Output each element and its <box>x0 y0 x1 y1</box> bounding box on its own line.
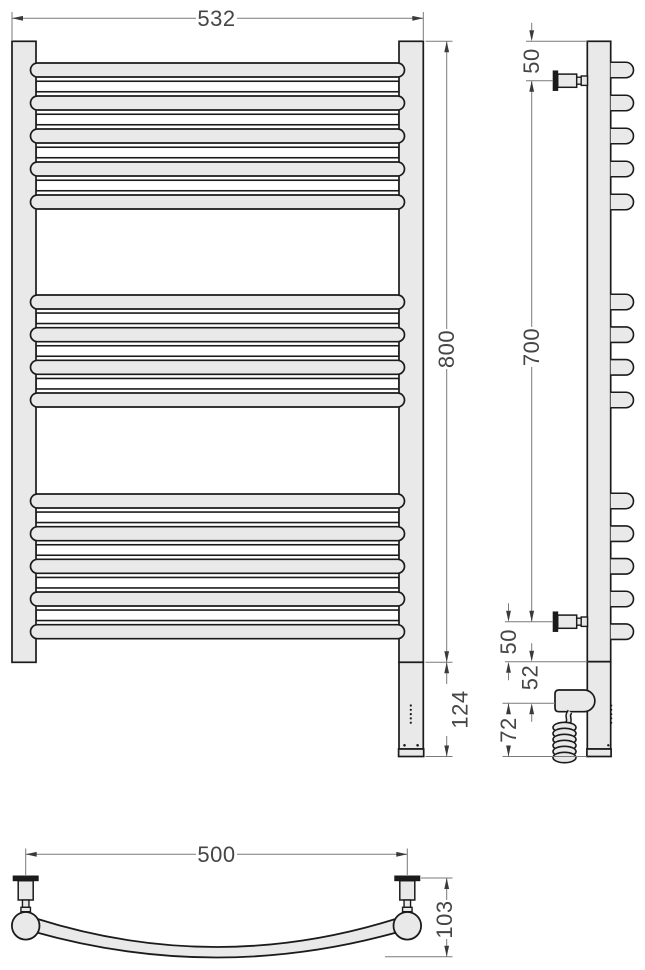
drawing-canvas: 53250080012450700505272103 <box>0 0 645 970</box>
bar-end-tab <box>611 526 634 542</box>
dimension-arrow <box>396 852 407 857</box>
dim-bracket-span-width: 500 <box>26 842 408 875</box>
flat-bar <box>36 346 399 357</box>
flat-bar <box>36 147 399 158</box>
round-bar <box>31 393 405 407</box>
dim-label-overall-height: 800 <box>434 330 459 368</box>
dimension-arrow <box>444 746 449 757</box>
bracket-collar <box>21 907 31 911</box>
bar-end-tab <box>611 559 634 575</box>
dimension-arrow <box>12 16 23 21</box>
dim-bracket-span-height: 700 <box>519 81 544 622</box>
bracket-collar <box>403 907 413 911</box>
dimension-arrow <box>529 30 534 41</box>
bar-end-tab <box>611 294 634 310</box>
control-led-dot <box>610 705 612 707</box>
dim-label-bottom-bracket-offset: 50 <box>496 629 521 654</box>
round-bar <box>31 195 405 209</box>
wall-bracket <box>553 612 587 632</box>
control-led-dot <box>610 717 612 719</box>
flat-bar <box>36 378 399 389</box>
dimension-arrow <box>529 651 534 662</box>
heating-element <box>555 690 595 712</box>
control-led-dot <box>410 713 412 715</box>
round-bar <box>31 162 405 176</box>
control-led-dot <box>610 713 612 715</box>
wall-bracket <box>553 71 587 91</box>
housing-cap-profile <box>587 749 611 757</box>
bottom-view <box>12 876 421 958</box>
bar-end-tab <box>611 360 634 376</box>
round-bar <box>31 328 405 342</box>
wall-bracket-top-view <box>394 876 422 940</box>
dim-housing-height: 124 <box>426 662 473 756</box>
control-led-dot <box>610 709 612 711</box>
dimension-arrow <box>26 852 37 857</box>
dim-overall-height: 800 <box>426 41 460 662</box>
screw-dot <box>403 744 406 747</box>
bracket-flange <box>553 612 558 632</box>
dim-label-bracket-span-height: 700 <box>519 328 544 366</box>
bracket-flange <box>553 71 558 91</box>
dim-label-heater-bottom-offset: 72 <box>496 717 521 742</box>
flat-bar <box>36 313 399 324</box>
dimension-arrow <box>444 41 449 52</box>
collector-profile <box>587 41 610 661</box>
bar-end-tab <box>611 194 634 210</box>
screw-dot <box>607 744 609 746</box>
round-bar <box>31 96 405 110</box>
collector-section <box>12 912 40 940</box>
bar-end-tab <box>611 327 634 343</box>
bar-end-tab <box>611 624 634 640</box>
dimension-arrow <box>506 703 511 714</box>
dimension-arrow <box>529 703 534 714</box>
side-view <box>553 41 634 762</box>
bracket-body <box>558 74 577 87</box>
technical-drawing: 53250080012450700505272103 <box>0 0 645 970</box>
bar-end-tab <box>611 62 634 78</box>
flat-bar <box>36 545 399 556</box>
flat-bar <box>36 512 399 523</box>
front-view <box>12 41 424 756</box>
control-led-dot <box>410 722 412 724</box>
round-bar <box>31 592 405 606</box>
curved-bar <box>33 919 400 958</box>
dimension-arrow <box>529 611 534 622</box>
bracket-neck <box>22 900 29 907</box>
dim-label-depth: 103 <box>432 900 457 938</box>
flat-bar <box>36 114 399 125</box>
bar-end-tab <box>611 493 634 509</box>
flat-bar <box>36 81 399 92</box>
round-bar <box>31 494 405 508</box>
bar-end-tab <box>611 161 634 177</box>
bracket-flange <box>13 876 38 881</box>
collector-section <box>394 912 422 940</box>
flat-bar <box>36 180 399 191</box>
round-bar <box>31 527 405 541</box>
dim-label-top-bracket-offset: 50 <box>519 48 544 73</box>
dimension-arrow <box>444 946 449 957</box>
round-bar <box>31 559 405 573</box>
dim-label-overall-width: 532 <box>197 6 235 31</box>
bracket-flange <box>395 876 420 881</box>
dim-label-heater-axis-offset: 52 <box>518 665 543 690</box>
round-bar <box>31 129 405 143</box>
flat-bar <box>36 577 399 588</box>
bar-end-tab <box>611 95 634 111</box>
coiled-cable-loop <box>553 752 576 762</box>
bracket-body <box>18 881 33 900</box>
flat-bar <box>36 610 399 621</box>
bracket-block <box>581 76 587 85</box>
dimension-arrow <box>506 611 511 622</box>
dimension-arrow <box>444 662 449 673</box>
bar-end-tab <box>611 128 634 144</box>
round-bar <box>31 360 405 374</box>
dimension-arrow <box>506 746 511 757</box>
round-bar <box>31 295 405 309</box>
wall-bracket-top-view <box>12 876 40 940</box>
dim-overall-width: 532 <box>12 6 423 40</box>
dimension-arrow <box>444 651 449 662</box>
round-bar <box>31 625 405 639</box>
round-bar <box>31 63 405 77</box>
control-led-dot <box>410 704 412 706</box>
screw-dot <box>416 744 419 747</box>
bar-end-tab <box>611 591 634 607</box>
bracket-block <box>581 617 587 626</box>
dim-label-bracket-span-width: 500 <box>197 842 235 867</box>
housing-cap <box>399 749 424 757</box>
dim-label-housing-height: 124 <box>448 690 473 728</box>
control-led-dot <box>610 722 612 724</box>
control-led-dot <box>410 709 412 711</box>
bracket-body <box>558 615 577 628</box>
dimension-arrow <box>444 878 449 889</box>
dimension-arrow <box>412 16 423 21</box>
bracket-body <box>400 881 415 900</box>
bar-end-tab <box>611 392 634 408</box>
dimension-arrow <box>506 662 511 673</box>
dimension-arrow <box>529 81 534 92</box>
bracket-neck <box>404 900 411 907</box>
control-led-dot <box>410 717 412 719</box>
